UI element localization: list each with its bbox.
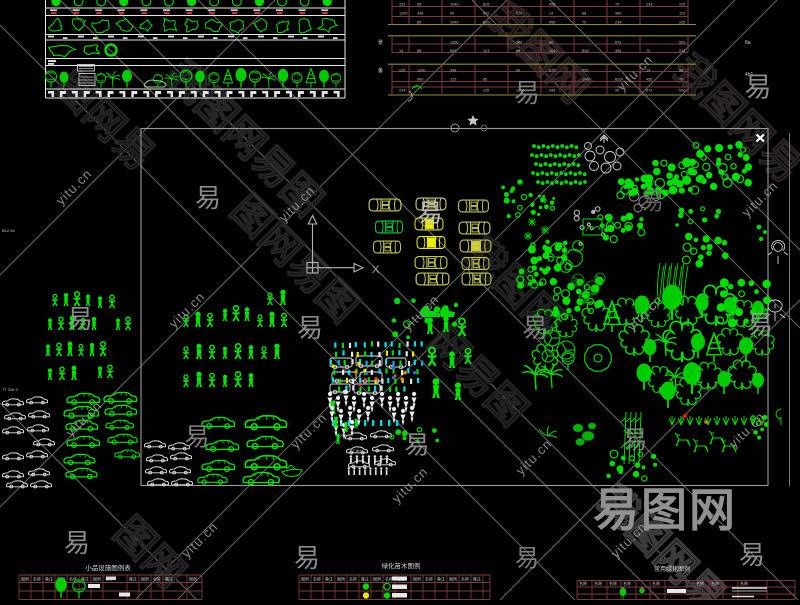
svg-text:7T 318 9: 7T 318 9: [2, 387, 18, 392]
svg-text:x25: x25: [399, 69, 405, 73]
svg-text:520: 520: [679, 41, 685, 45]
svg-text:备注: 备注: [437, 576, 445, 582]
svg-text:1040: 1040: [450, 3, 458, 7]
svg-text:1200: 1200: [450, 41, 458, 45]
svg-text:备注: 备注: [165, 576, 173, 582]
svg-text:1200: 1200: [399, 12, 407, 16]
svg-text:名称: 名称: [711, 580, 719, 586]
svg-text:名称: 名称: [696, 580, 704, 586]
svg-text:70: 70: [679, 78, 683, 82]
svg-text:易: 易: [515, 545, 539, 572]
svg-text:4T 8HY.: 4T 8HY.: [350, 448, 364, 453]
svg-text:备注: 备注: [129, 576, 137, 582]
svg-text:1200: 1200: [417, 69, 425, 73]
svg-text:名称: 名称: [313, 576, 321, 582]
svg-text:B12 54: B12 54: [2, 228, 15, 233]
svg-text:348: 348: [549, 89, 555, 93]
svg-text:90: 90: [549, 41, 553, 45]
svg-text:备: 备: [378, 67, 383, 74]
svg-text:名称: 名称: [425, 576, 433, 582]
svg-text:图例: 图例: [337, 576, 345, 582]
svg-text:易: 易: [294, 543, 320, 573]
svg-text:易: 易: [514, 78, 540, 108]
svg-text:备注: 备注: [361, 576, 369, 582]
svg-text:123: 123: [679, 12, 685, 16]
svg-text:123: 123: [450, 78, 456, 82]
svg-text:520: 520: [679, 89, 685, 93]
svg-text:456: 456: [646, 78, 652, 82]
svg-text:名称: 名称: [594, 580, 602, 586]
svg-text:960: 960: [615, 12, 621, 16]
svg-text:960: 960: [450, 49, 456, 53]
svg-text:名称: 名称: [33, 576, 41, 582]
svg-text:易图网: 易图网: [593, 484, 737, 536]
svg-text:备注: 备注: [45, 576, 53, 582]
svg-text:672: 672: [646, 89, 652, 93]
svg-text:图例: 图例: [449, 576, 457, 582]
svg-text:1040: 1040: [549, 49, 557, 53]
svg-text:X: X: [372, 264, 380, 276]
svg-text:易: 易: [747, 310, 773, 340]
svg-text:图例: 图例: [21, 576, 29, 582]
svg-text:易: 易: [67, 304, 93, 334]
svg-text:易: 易: [404, 432, 429, 460]
svg-text:8a: 8a: [745, 40, 751, 46]
svg-text:x25: x25: [679, 3, 685, 7]
svg-text:14: 14: [399, 49, 403, 53]
svg-text:90: 90: [450, 12, 454, 16]
svg-text:名称: 名称: [609, 580, 617, 586]
svg-text:88: 88: [679, 69, 683, 73]
svg-text:123: 123: [483, 49, 489, 53]
svg-text:名称: 名称: [153, 576, 161, 582]
svg-text:易: 易: [417, 200, 442, 228]
svg-text:名称: 名称: [740, 580, 748, 586]
svg-text:绿化苗木图例: 绿化苗木图例: [382, 561, 421, 570]
svg-text:14: 14: [549, 12, 553, 16]
svg-text:易: 易: [739, 540, 765, 570]
svg-text:图例: 图例: [189, 576, 197, 582]
svg-text:易: 易: [522, 313, 548, 343]
svg-text:易: 易: [622, 427, 647, 455]
svg-text:234: 234: [399, 89, 405, 93]
svg-text:B32: B32: [582, 49, 589, 53]
svg-text:名称: 名称: [461, 576, 469, 582]
svg-text:456: 456: [549, 21, 555, 25]
svg-text:x25: x25: [483, 89, 489, 93]
svg-text:名称: 名称: [623, 580, 631, 586]
svg-text:图例: 图例: [413, 576, 421, 582]
svg-text:易: 易: [745, 72, 772, 102]
svg-text:图例: 图例: [301, 576, 309, 582]
svg-text:960: 960: [417, 78, 423, 82]
svg-text:70: 70: [582, 21, 586, 25]
svg-text:348: 348: [516, 41, 522, 45]
svg-text:348: 348: [417, 12, 423, 16]
svg-text:70: 70: [646, 49, 650, 53]
svg-text:名称: 名称: [349, 576, 357, 582]
svg-text:图例: 图例: [93, 576, 101, 582]
svg-text:348: 348: [450, 69, 456, 73]
svg-text:90: 90: [516, 69, 520, 73]
svg-text:70: 70: [615, 3, 619, 7]
svg-text:小品设施图例表: 小品设施图例表: [85, 563, 131, 572]
svg-text:B32: B32: [483, 21, 490, 25]
svg-text:456: 456: [549, 3, 555, 7]
svg-text:234: 234: [646, 3, 652, 7]
svg-text:名称: 名称: [385, 576, 393, 582]
svg-text:88: 88: [582, 12, 586, 16]
svg-text:B32: B32: [483, 3, 490, 7]
svg-text:672: 672: [615, 41, 621, 45]
svg-text:672: 672: [483, 12, 489, 16]
svg-text:备注: 备注: [325, 576, 333, 582]
svg-text:85: 85: [417, 21, 421, 25]
svg-text:234: 234: [679, 49, 685, 53]
svg-text:88: 88: [417, 49, 421, 53]
svg-text:456: 456: [615, 49, 621, 53]
svg-text:520: 520: [516, 12, 522, 16]
svg-text:名称: 名称: [579, 580, 587, 586]
svg-text:图例: 图例: [373, 576, 381, 582]
svg-text:x25: x25: [679, 21, 685, 25]
svg-text:易: 易: [64, 528, 90, 558]
svg-text:520: 520: [582, 69, 588, 73]
svg-text:常用绿化图例: 常用绿化图例: [654, 565, 690, 573]
svg-text:123: 123: [399, 3, 405, 7]
svg-text:1040: 1040: [582, 78, 590, 82]
svg-text:名称: 名称: [652, 580, 660, 586]
svg-text:234: 234: [615, 21, 621, 25]
svg-text:85: 85: [516, 49, 520, 53]
svg-text:易: 易: [640, 188, 664, 215]
svg-text:易: 易: [195, 183, 221, 213]
svg-text:图例: 图例: [141, 576, 149, 582]
svg-text:672: 672: [549, 69, 555, 73]
svg-text:易: 易: [184, 424, 209, 452]
svg-text:1040: 1040: [450, 21, 458, 25]
svg-text:易: 易: [297, 313, 323, 343]
svg-text:85: 85: [483, 78, 487, 82]
svg-text:景: 景: [378, 39, 383, 46]
svg-text:备注: 备注: [473, 576, 481, 582]
svg-text:85: 85: [417, 3, 421, 7]
